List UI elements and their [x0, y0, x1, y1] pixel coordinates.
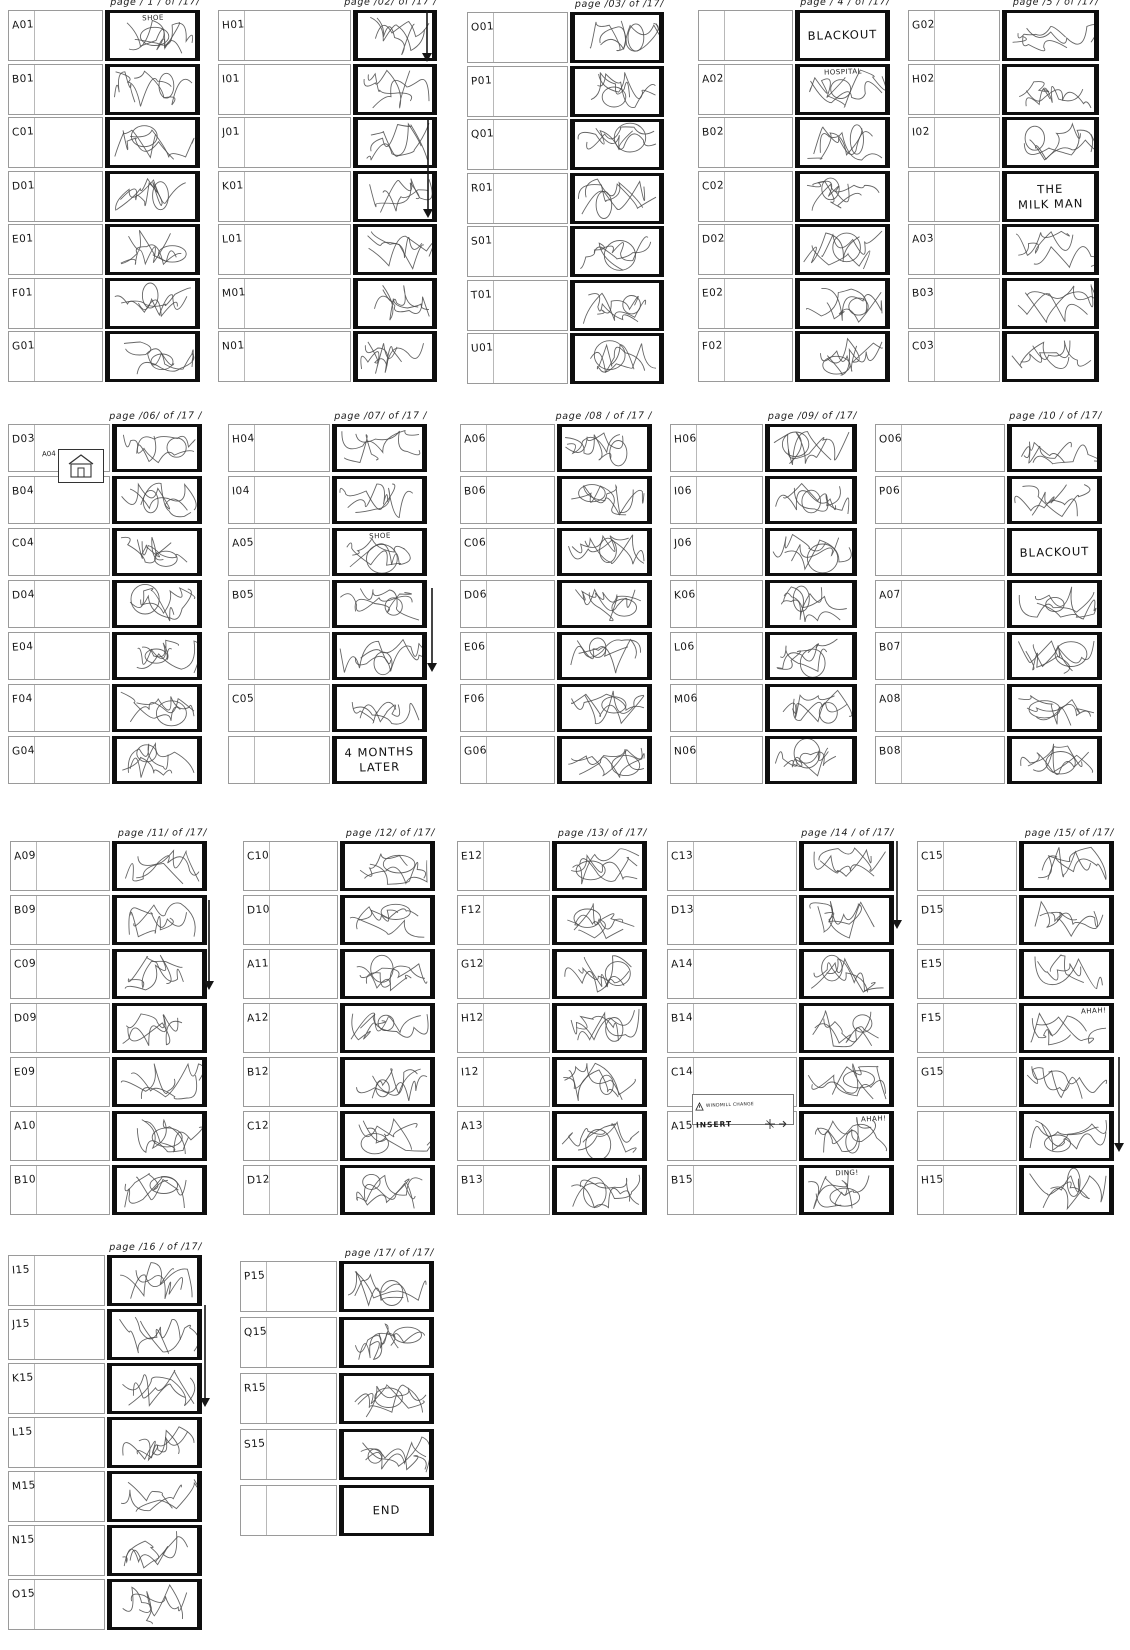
panel-thumbnail — [1019, 949, 1114, 999]
panel-label-cell: C06 — [461, 529, 487, 575]
pencil-sketch — [1007, 227, 1094, 272]
notes-blank-cell — [35, 172, 102, 221]
notes-box: B07 — [875, 632, 1005, 680]
panel-thumbnail — [112, 1165, 207, 1215]
panel-label-cell: B14 — [668, 1004, 694, 1052]
thumbnail-caption: BLACKOUT — [1011, 530, 1097, 574]
pencil-sketch — [800, 227, 885, 272]
notes-blank-cell — [725, 279, 792, 328]
pencil-sketch — [1024, 1114, 1109, 1158]
panel-thumbnail — [112, 736, 202, 784]
pencil-sketch — [770, 687, 852, 729]
panel-label: G15 — [921, 1066, 945, 1078]
notes-box: A01 — [8, 10, 103, 61]
down-arrow-icon — [426, 588, 438, 676]
panel-label: J01 — [222, 126, 241, 138]
sketch-caption: AHAH! — [860, 1114, 886, 1123]
notes-blank-cell — [35, 118, 102, 167]
notes-blank-cell — [484, 896, 549, 944]
panel-thumbnail — [1007, 580, 1102, 628]
notes-box: B12 — [243, 1057, 338, 1107]
panel-thumbnail — [107, 1525, 202, 1576]
panel-thumbnail: SHOE — [105, 10, 200, 61]
page-header: page / 4 / of /17/ — [698, 0, 890, 9]
panel-label: M01 — [222, 287, 247, 299]
panel-thumbnail — [570, 333, 664, 384]
panel-label: B04 — [12, 485, 35, 497]
notes-box: C09 — [10, 949, 110, 999]
panel-thumbnail — [552, 895, 647, 945]
panel-label-cell — [909, 172, 935, 221]
panel-label-cell: D10 — [244, 896, 270, 944]
pencil-sketch — [1007, 13, 1094, 58]
pencil-sketch — [110, 120, 195, 165]
pencil-sketch — [770, 583, 852, 625]
notes-blank-cell — [35, 332, 102, 381]
pencil-sketch — [557, 898, 642, 942]
page-header: page /06/ of /17 / — [8, 410, 202, 422]
panel-thumbnail — [105, 117, 200, 168]
pencil-sketch — [345, 952, 430, 996]
panel-thumbnail — [557, 476, 652, 524]
notes-blank-cell — [902, 529, 1004, 575]
pencil-sketch — [117, 1114, 202, 1158]
panel-label: D09 — [14, 1012, 38, 1024]
notes-blank-cell — [35, 1580, 104, 1629]
panel-thumbnail — [107, 1579, 202, 1630]
panel-thumbnail — [765, 424, 857, 472]
notes-box: C06 — [460, 528, 555, 576]
pencil-sketch — [112, 1528, 197, 1573]
pencil-sketch — [345, 844, 430, 888]
notes-box: M01 — [218, 278, 351, 329]
page-header: page /13/ of /17/ — [457, 827, 647, 839]
pencil-sketch — [557, 1114, 642, 1158]
panel-thumbnail — [552, 1111, 647, 1161]
panel-thumbnail — [552, 1003, 647, 1053]
panel-label: I12 — [461, 1066, 480, 1078]
panel-label-cell: H02 — [909, 65, 935, 114]
panel-label: H02 — [912, 73, 935, 85]
panel-thumbnail — [557, 632, 652, 680]
notes-blank-cell — [267, 1374, 336, 1423]
notes-blank-cell — [694, 1166, 796, 1214]
pencil-sketch — [344, 1264, 429, 1309]
notes-box: G15 — [917, 1057, 1017, 1107]
panel-label-cell: L15 — [9, 1418, 35, 1467]
panel-thumbnail-text: THEMILK MAN — [1002, 171, 1099, 222]
panel-label-cell: C14 — [668, 1058, 694, 1106]
panel-thumbnail — [1007, 424, 1102, 472]
notes-blank-cell — [944, 1058, 1016, 1106]
notes-box: I15 — [8, 1255, 105, 1306]
notes-blank-cell — [935, 118, 999, 167]
notes-box: B01 — [8, 64, 103, 115]
pencil-sketch — [117, 844, 202, 888]
notes-box: Q01 — [467, 119, 568, 170]
pencil-sketch — [110, 227, 195, 272]
notes-box: G12 — [457, 949, 550, 999]
panel-thumbnail — [340, 1003, 435, 1053]
notes-box: A03 — [908, 224, 1000, 275]
sketch-caption: AHAH! — [1080, 1006, 1106, 1015]
panel-label: B02 — [702, 126, 725, 138]
panel-label-cell: L06 — [671, 633, 697, 679]
panel-label: L15 — [12, 1426, 33, 1438]
panel-thumbnail — [799, 895, 894, 945]
sketch-caption: DING! — [835, 1169, 859, 1178]
notes-box: C05 — [228, 684, 330, 732]
panel-thumbnail — [112, 1111, 207, 1161]
notes-blank-cell — [725, 65, 792, 114]
panel-thumbnail — [765, 528, 857, 576]
panel-thumbnail — [340, 949, 435, 999]
panel-label: O06 — [879, 433, 903, 445]
windmill-arrow-icon — [764, 1115, 790, 1134]
panel-thumbnail — [332, 684, 427, 732]
notes-blank-cell — [494, 13, 567, 62]
panel-label-cell: A01 — [9, 11, 35, 60]
panel-label-cell: J01 — [219, 118, 245, 167]
thumbnail-caption: THEMILK MAN — [1006, 172, 1094, 219]
panel-label-cell: F01 — [9, 279, 35, 328]
panel-thumbnail — [799, 1003, 894, 1053]
page-header: page /09/ of /17/ — [670, 410, 857, 422]
notes-blank-cell — [494, 174, 567, 223]
caption-line: BLACKOUT — [807, 27, 877, 44]
notes-box: F04 — [8, 684, 110, 732]
panel-thumbnail — [112, 684, 202, 732]
notes-blank-cell — [270, 1058, 337, 1106]
panel-label: A08 — [879, 693, 902, 705]
panel-label-cell: D03 — [9, 425, 35, 471]
notes-blank-cell — [270, 950, 337, 998]
panel-label: T01 — [471, 289, 493, 301]
panel-thumbnail — [332, 424, 427, 472]
panel-label: A10 — [14, 1120, 37, 1132]
panel-label-cell: E02 — [699, 279, 725, 328]
panel-thumbnail — [1019, 841, 1114, 891]
panel-label: A14 — [671, 958, 694, 970]
pencil-sketch — [110, 174, 195, 219]
page-header: page /10 / of /17/ — [875, 410, 1102, 423]
panel-thumbnail — [1007, 476, 1102, 524]
pencil-sketch — [117, 898, 202, 942]
panel-label-cell: A07 — [876, 581, 902, 627]
notes-box: F12 — [457, 895, 550, 945]
panel-thumbnail-text: BLACKOUT — [1007, 528, 1102, 576]
thumbnail-caption: 4 MONTHSLATER — [336, 738, 422, 782]
pencil-sketch — [575, 15, 659, 60]
panel-label-cell: G12 — [458, 950, 484, 998]
pencil-sketch — [1024, 1168, 1109, 1212]
notes-box: L01 — [218, 224, 351, 275]
notes-box: N01 — [218, 331, 351, 382]
panel-label-cell: P01 — [468, 67, 494, 116]
panel-thumbnail-text: END — [339, 1485, 434, 1536]
panel-label: O01 — [471, 21, 495, 33]
notes-box: A10 — [10, 1111, 110, 1161]
notes-box: A06 — [460, 424, 555, 472]
panel-label: G04 — [12, 745, 36, 757]
pencil-sketch — [1012, 635, 1097, 677]
panel-thumbnail — [557, 736, 652, 784]
notes-box: N15 — [8, 1525, 105, 1576]
notes-box: I01 — [218, 64, 351, 115]
panel-label-cell: C03 — [909, 332, 935, 381]
panel-label-cell: G02 — [909, 11, 935, 60]
panel-label: B03 — [912, 287, 935, 299]
panel-label: A01 — [12, 19, 35, 31]
notes-box: K06 — [670, 580, 763, 628]
panel-label-cell: B01 — [9, 65, 35, 114]
panel-label-cell: B05 — [229, 581, 255, 627]
caption-line: LATER — [359, 759, 400, 775]
notes-box: N06 — [670, 736, 763, 784]
panel-thumbnail — [353, 64, 437, 115]
pencil-sketch — [804, 1060, 889, 1104]
panel-thumbnail — [799, 1057, 894, 1107]
panel-thumbnail — [112, 1003, 207, 1053]
panel-label: E09 — [14, 1066, 36, 1078]
panel-thumbnail: AHAH! — [1019, 1003, 1114, 1053]
page-header: page /08 / of /17 / — [460, 410, 652, 422]
pencil-sketch — [804, 1006, 889, 1050]
notes-box: J01 — [218, 117, 351, 168]
panel-label: D15 — [921, 904, 945, 916]
down-arrow-icon — [199, 1305, 211, 1411]
page-header: page /15/ of /17/ — [917, 827, 1114, 839]
notes-box: A12 — [243, 1003, 338, 1053]
panel-label-cell: H06 — [671, 425, 697, 471]
panel-label-cell: B09 — [11, 896, 37, 944]
panel-label-cell: E15 — [918, 950, 944, 998]
panel-thumbnail — [570, 119, 664, 170]
page-header: page /02/ of /17 / — [218, 0, 437, 9]
notes-box: J15 — [8, 1309, 105, 1360]
pencil-sketch — [117, 952, 202, 996]
pencil-sketch — [562, 479, 647, 521]
notes-box: D04 — [8, 580, 110, 628]
notes-blank-cell — [37, 950, 109, 998]
notes-box: I04 — [228, 476, 330, 524]
panel-label: F12 — [461, 904, 483, 916]
down-arrow-icon — [422, 120, 434, 222]
panel-thumbnail — [107, 1417, 202, 1468]
panel-thumbnail — [112, 632, 202, 680]
notes-box: E02 — [698, 278, 793, 329]
pencil-sketch — [804, 844, 889, 888]
notes-box: O01 — [467, 12, 568, 63]
panel-label-cell: B06 — [461, 477, 487, 523]
page-header: page /16 / of /17/ — [8, 1241, 202, 1253]
notes-box: A07 — [875, 580, 1005, 628]
notes-blank-cell — [944, 1112, 1016, 1160]
notes-box: B13 — [457, 1165, 550, 1215]
panel-label: Q15 — [244, 1326, 268, 1338]
panel-thumbnail — [765, 736, 857, 784]
panel-label-cell: B07 — [876, 633, 902, 679]
notes-box: A08 — [875, 684, 1005, 732]
notes-blank-cell — [267, 1486, 336, 1535]
notes-blank-cell — [487, 529, 554, 575]
panel-label: F01 — [12, 287, 34, 299]
notes-box: B14 — [667, 1003, 797, 1053]
panel-label: M06 — [674, 693, 699, 705]
panel-label-cell: A08 — [876, 685, 902, 731]
panel-label-cell: A09 — [11, 842, 37, 890]
notes-box: H15 — [917, 1165, 1017, 1215]
notes-blank-cell — [697, 737, 762, 783]
panel-label-cell: L01 — [219, 225, 245, 274]
notes-box — [917, 1111, 1017, 1161]
panel-thumbnail: DING! — [799, 1165, 894, 1215]
panel-label: U01 — [471, 342, 494, 354]
panel-label-cell: B02 — [699, 118, 725, 167]
pencil-sketch — [337, 635, 422, 677]
panel-label-cell: C05 — [229, 685, 255, 731]
pencil-sketch — [562, 739, 647, 781]
panel-label: S01 — [471, 235, 493, 247]
down-arrow-icon — [203, 900, 215, 994]
panel-label-cell: A14 — [668, 950, 694, 998]
panel-label: C10 — [247, 850, 270, 862]
panel-label-cell: C01 — [9, 118, 35, 167]
panel-label-cell: H04 — [229, 425, 255, 471]
panel-label-cell: A06 — [461, 425, 487, 471]
panel-thumbnail — [340, 841, 435, 891]
panel-label-cell: I15 — [9, 1256, 35, 1305]
notes-blank-cell — [697, 529, 762, 575]
panel-label: H12 — [461, 1012, 484, 1024]
panel-thumbnail — [339, 1317, 434, 1368]
panel-thumbnail — [1002, 224, 1099, 275]
notes-blank-cell — [494, 227, 567, 276]
panel-label-cell: J15 — [9, 1310, 35, 1359]
notes-box: C02 — [698, 171, 793, 222]
panel-label: E04 — [12, 641, 34, 653]
notes-blank-cell — [944, 1004, 1016, 1052]
pencil-sketch — [770, 531, 852, 573]
panel-label-cell: D09 — [11, 1004, 37, 1052]
panel-label-cell: R01 — [468, 174, 494, 223]
panel-label: A15 — [671, 1120, 694, 1132]
notes-blank-cell — [255, 477, 329, 523]
notes-blank-cell — [37, 1058, 109, 1106]
notes-blank-cell — [35, 1310, 104, 1359]
panel-label-cell: G06 — [461, 737, 487, 783]
panel-label: O15 — [12, 1588, 36, 1600]
pencil-sketch — [1024, 952, 1109, 996]
notes-box: D02 — [698, 224, 793, 275]
pencil-sketch — [344, 1432, 429, 1477]
panel-label-cell: S15 — [241, 1430, 267, 1479]
panel-label-cell: D15 — [918, 896, 944, 944]
panel-thumbnail — [795, 331, 890, 382]
notes-box: R15 — [240, 1373, 337, 1424]
notes-blank-cell — [935, 11, 999, 60]
panel-label-cell: F15 — [918, 1004, 944, 1052]
notes-blank-cell — [697, 581, 762, 627]
notes-blank-cell — [484, 1166, 549, 1214]
thumbnail-caption: BLACKOUT — [799, 12, 885, 59]
panel-thumbnail — [112, 841, 207, 891]
notes-blank-cell — [484, 842, 549, 890]
notes-blank-cell — [935, 332, 999, 381]
notes-box: G01 — [8, 331, 103, 382]
panel-label-cell: B08 — [876, 737, 902, 783]
caption-line: THE — [1037, 181, 1063, 197]
notes-box: D15 — [917, 895, 1017, 945]
panel-label: L01 — [222, 233, 243, 245]
panel-thumbnail — [353, 224, 437, 275]
pencil-sketch — [1007, 120, 1094, 165]
notes-box: E12 — [457, 841, 550, 891]
panel-label-cell: D02 — [699, 225, 725, 274]
panel-label: G06 — [464, 745, 488, 757]
panel-label: A11 — [247, 958, 270, 970]
panel-label: C12 — [247, 1120, 270, 1132]
panel-label-cell: A05 — [229, 529, 255, 575]
notes-blank-cell — [944, 1166, 1016, 1214]
notes-blank-cell — [267, 1318, 336, 1367]
pencil-sketch — [358, 281, 432, 326]
page-header: page /14 / of /17/ — [667, 827, 894, 840]
panel-thumbnail — [112, 424, 202, 472]
notes-blank-cell — [725, 118, 792, 167]
panel-thumbnail — [799, 949, 894, 999]
panel-label: D10 — [247, 904, 271, 916]
notes-box: D01 — [8, 171, 103, 222]
panel-label-cell: F02 — [699, 332, 725, 381]
panel-label: A04 — [42, 451, 56, 459]
panel-label: F15 — [921, 1012, 943, 1024]
panel-label: E06 — [464, 641, 486, 653]
pencil-sketch — [117, 583, 197, 625]
notes-blank-cell — [255, 581, 329, 627]
pencil-sketch — [358, 227, 432, 272]
panel-label-cell: B15 — [668, 1166, 694, 1214]
panel-thumbnail — [795, 224, 890, 275]
panel-label: C09 — [14, 958, 37, 970]
panel-label-cell: G01 — [9, 332, 35, 381]
notes-blank-cell — [944, 950, 1016, 998]
panel-label-cell: H12 — [458, 1004, 484, 1052]
panel-label: C14 — [671, 1066, 694, 1078]
pencil-sketch — [1007, 334, 1094, 379]
panel-label-cell: I12 — [458, 1058, 484, 1106]
pencil-sketch — [1024, 1060, 1109, 1104]
panel-thumbnail — [557, 528, 652, 576]
panel-label-cell: N06 — [671, 737, 697, 783]
notes-box: T01 — [467, 280, 568, 331]
panel-label: B14 — [671, 1012, 694, 1024]
pencil-sketch — [337, 583, 422, 625]
notes-blank-cell — [725, 225, 792, 274]
pencil-sketch — [562, 687, 647, 729]
notes-blank-cell — [697, 633, 762, 679]
notes-blank-cell — [245, 332, 350, 381]
notes-blank-cell — [484, 1004, 549, 1052]
pencil-sketch — [345, 1168, 430, 1212]
panel-thumbnail — [112, 476, 202, 524]
notes-blank-cell — [255, 737, 329, 783]
panel-label: B10 — [14, 1174, 37, 1186]
panel-label: A03 — [912, 233, 935, 245]
panel-thumbnail — [112, 1057, 207, 1107]
panel-label: C06 — [464, 537, 487, 549]
panel-label: F06 — [464, 693, 486, 705]
